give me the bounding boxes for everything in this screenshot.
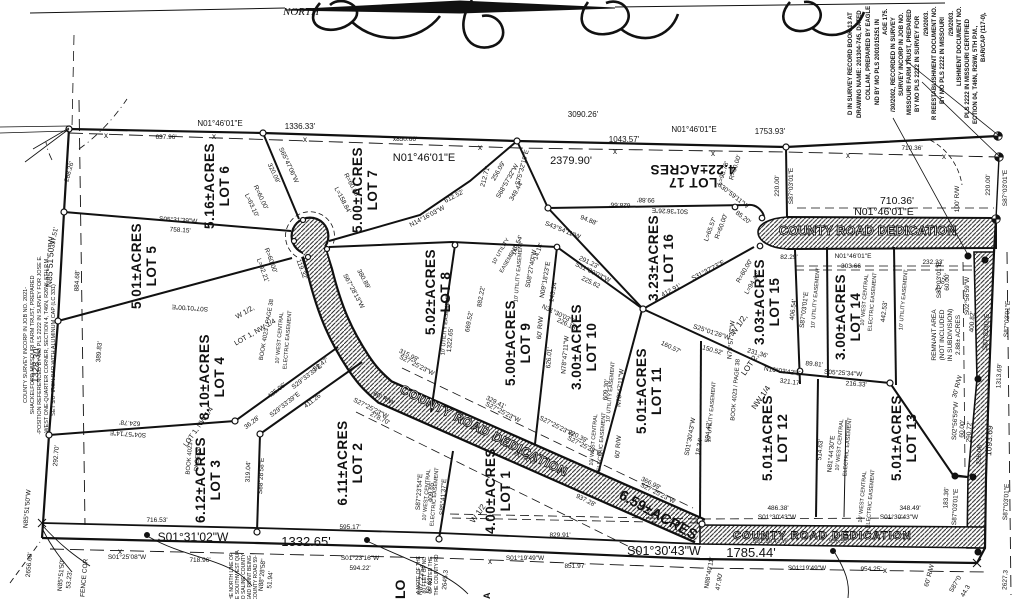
- svg-text:954.25': 954.25': [860, 566, 881, 573]
- svg-text:BAR/CAP (117-0),: BAR/CAP (117-0),: [981, 12, 987, 62]
- svg-text:LOT 12: LOT 12: [775, 414, 790, 463]
- svg-text:99.88': 99.88': [637, 196, 655, 204]
- svg-text:COUNTY ROAD 59-: COUNTY ROAD 59-: [253, 555, 259, 599]
- svg-text:486.38': 486.38': [767, 505, 788, 512]
- svg-text:/29/2003.: /29/2003.: [949, 11, 955, 36]
- svg-text:LOT 9: LOT 9: [518, 323, 533, 364]
- svg-text:718.96': 718.96': [189, 557, 210, 564]
- svg-text:5.01±ACRES: 5.01±ACRES: [129, 223, 144, 309]
- svg-text:3.23±ACRES: 3.23±ACRES: [646, 215, 661, 301]
- svg-text:-POSITION REFERENCED BY MO PLS: -POSITION REFERENCED BY MO PLS 2222 IN S…: [37, 255, 43, 435]
- svg-text:1313.69': 1313.69': [995, 363, 1003, 388]
- svg-text:S01°19'49"W: S01°19'49"W: [788, 564, 827, 572]
- svg-text:1336.33': 1336.33': [285, 122, 316, 131]
- svg-text:S01°30'43"W: S01°30'43"W: [752, 539, 788, 545]
- svg-text:S01°30'43"W: S01°30'43"W: [758, 513, 797, 521]
- svg-text:S01°36'26"E: S01°36'26"E: [651, 206, 688, 215]
- svg-text:LOT 1: LOT 1: [498, 471, 513, 512]
- svg-text:S87°03'01"E: S87°03'01"E: [787, 167, 795, 204]
- svg-text:x: x: [303, 135, 307, 144]
- svg-text:595.17': 595.17': [339, 524, 360, 531]
- svg-text:x: x: [212, 132, 216, 141]
- svg-text:624.78': 624.78': [119, 418, 141, 426]
- svg-text:LOT 6: LOT 6: [217, 166, 232, 207]
- svg-text:PLS 2222 IN MISSOURI CERTIFIED: PLS 2222 IN MISSOURI CERTIFIED: [965, 18, 971, 118]
- svg-text:851.97': 851.97': [564, 563, 585, 570]
- svg-text:x: x: [883, 566, 887, 575]
- svg-text:319.04': 319.04': [244, 461, 252, 482]
- svg-text:LISHMENT DOCUMENT NO.: LISHMENT DOCUMENT NO.: [957, 6, 963, 86]
- svg-text:N01°46'01"E: N01°46'01"E: [835, 252, 873, 260]
- svg-text:NORTH: NORTH: [282, 6, 320, 18]
- svg-text:2627.3: 2627.3: [1001, 569, 1009, 590]
- svg-text:LOT 15: LOT 15: [767, 278, 782, 327]
- svg-text:1043.57': 1043.57': [609, 135, 640, 144]
- svg-text:LOT 7: LOT 7: [365, 170, 380, 211]
- svg-text:594.22': 594.22': [349, 565, 370, 572]
- svg-text:THE COUNTY RD: THE COUNTY RD: [434, 554, 440, 595]
- svg-text:x: x: [711, 149, 715, 158]
- svg-text:1332.65': 1332.65': [281, 534, 330, 549]
- svg-text:A: A: [482, 592, 492, 599]
- svg-text:216.33': 216.33': [845, 380, 867, 388]
- svg-text:710.36': 710.36': [901, 145, 922, 152]
- svg-text:758.15': 758.15': [169, 226, 191, 234]
- svg-text:N01°46'01"E: N01°46'01"E: [393, 152, 455, 164]
- svg-text:628.66': 628.66': [609, 201, 630, 209]
- svg-text:S01°23'16"W: S01°23'16"W: [341, 554, 380, 562]
- svg-text:S02°56'59"W: S02°56'59"W: [963, 276, 971, 315]
- svg-text:LOT 10: LOT 10: [584, 323, 599, 372]
- svg-text:303.66: 303.66: [841, 263, 861, 270]
- svg-text:5.01±ACRES: 5.01±ACRES: [760, 395, 775, 481]
- svg-text:884.68': 884.68': [73, 270, 81, 291]
- svg-text:DRAWING NAME: 201304-745, DATE: DRAWING NAME: 201304-745, DATED: [857, 10, 863, 118]
- svg-text:COUNTY ROAD DEDICATION: COUNTY ROAD DEDICATION: [779, 224, 957, 238]
- svg-text:REMNANT AREA: REMNANT AREA: [931, 309, 938, 361]
- svg-text:1753.93': 1753.93': [755, 127, 786, 136]
- svg-text:5.00±ACRES: 5.00±ACRES: [503, 300, 518, 386]
- svg-text:LOT 13: LOT 13: [904, 414, 919, 463]
- svg-text:S01°31'02"W: S01°31'02"W: [158, 530, 229, 544]
- svg-text:232.33': 232.33': [922, 259, 943, 266]
- svg-text:x: x: [478, 143, 482, 152]
- svg-text:x: x: [613, 147, 617, 156]
- svg-text:COLLAM, PREPARED BY EAGLE: COLLAM, PREPARED BY EAGLE: [866, 6, 872, 100]
- svg-text:LOT 3: LOT 3: [208, 460, 223, 501]
- svg-text:COUNTY SURVEY INCORP IN JOB NO: COUNTY SURVEY INCORP IN JOB NO. 2021-: [23, 287, 29, 403]
- svg-text:x: x: [846, 151, 850, 160]
- svg-text:LO: LO: [392, 579, 408, 599]
- svg-text:82.29': 82.29': [780, 254, 798, 261]
- svg-text:4.00±ACRES: 4.00±ACRES: [483, 448, 498, 534]
- svg-text:5.16±ACRES: 5.16±ACRES: [202, 143, 217, 229]
- svg-text:3090.26': 3090.26': [568, 110, 599, 119]
- svg-text:LOT 11: LOT 11: [649, 367, 664, 415]
- svg-text:SURVEY INCORP IN JOB NO.: SURVEY INCORP IN JOB NO.: [899, 12, 905, 96]
- svg-text:WEST ONE-QUARTER CORNER, SECTI: WEST ONE-QUARTER CORNER, SECTION 4, T46N…: [44, 257, 50, 433]
- svg-text:ND BY MO PLS 2001015251 IN: ND BY MO PLS 2001015251 IN: [875, 19, 881, 105]
- svg-text:3.00±ACRES: 3.00±ACRES: [833, 274, 848, 360]
- svg-text:SHACKELFORD MISSOURI FARM TRUS: SHACKELFORD MISSOURI FARM TRUST, PREPARE…: [30, 276, 36, 415]
- svg-text:956.53: 956.53: [829, 539, 848, 545]
- svg-text:LOT 2: LOT 2: [350, 443, 365, 484]
- svg-text:x: x: [118, 547, 122, 556]
- svg-text:290.72': 290.72': [965, 421, 973, 442]
- svg-text:AGE 175.: AGE 175.: [883, 8, 889, 35]
- svg-text:348.49': 348.49': [899, 505, 920, 512]
- svg-text:5.02±ACRES: 5.02±ACRES: [423, 249, 438, 335]
- svg-text:716.53': 716.53': [146, 517, 167, 524]
- svg-text:S01°30'43"W: S01°30'43"W: [880, 513, 919, 521]
- svg-text:ECTION 04, T46N, R26W, 5TH P.M: ECTION 04, T46N, R26W, 5TH P.M.,: [973, 25, 979, 124]
- svg-text:/29/2003.: /29/2003.: [924, 11, 930, 36]
- svg-text:(NOT INCLUDED: (NOT INCLUDED: [939, 309, 946, 360]
- svg-text:1093.69': 1093.69': [983, 423, 995, 456]
- svg-text:S87°03'01"E: S87°03'01"E: [1001, 169, 1009, 206]
- svg-text:N01°46'01"E: N01°46'01"E: [671, 125, 716, 134]
- svg-text:D IN SURVEY RECORD BOOK 13 AT: D IN SURVEY RECORD BOOK 13 AT: [848, 12, 854, 115]
- svg-text:LOT 4: LOT 4: [212, 357, 227, 398]
- svg-text:5.01±ACRES: 5.01±ACRES: [634, 348, 649, 434]
- svg-text:x850.66': x850.66': [393, 136, 417, 143]
- svg-text:IN SUBDIVISION): IN SUBDIVISION): [947, 309, 954, 361]
- svg-text:228.08: 228.08: [975, 444, 983, 465]
- svg-text:LOT 5: LOT 5: [144, 246, 159, 287]
- svg-text:S01°25'08"W: S01°25'08"W: [108, 553, 147, 561]
- svg-text:637.96': 637.96': [155, 134, 176, 141]
- svg-text:829.91': 829.91': [549, 532, 570, 539]
- svg-text:x: x: [488, 557, 492, 566]
- svg-text:BY MO PLS 2222 IN SURVEY FOR: BY MO PLS 2222 IN SURVEY FOR: [915, 15, 921, 112]
- svg-text:220.00': 220.00': [774, 175, 781, 196]
- svg-text:6.11±ACRES: 6.11±ACRES: [335, 420, 350, 505]
- svg-text:R REESTABLISHMENT DOCUMENT NO.: R REESTABLISHMENT DOCUMENT NO.: [932, 6, 938, 120]
- svg-text:220.00': 220.00': [985, 174, 992, 195]
- svg-text:N01°46'01"E: N01°46'01"E: [197, 119, 242, 128]
- svg-text:S01°19'49"W: S01°19'49"W: [506, 554, 545, 562]
- svg-text:1785.44': 1785.44': [726, 545, 775, 560]
- svg-text:2379.90': 2379.90': [550, 155, 592, 167]
- svg-text:183.36': 183.36': [942, 487, 950, 508]
- svg-text:LOT 16: LOT 16: [661, 234, 676, 283]
- svg-text:400.82': 400.82': [968, 311, 976, 332]
- svg-text:x: x: [104, 131, 108, 140]
- svg-text:SET 5/8" IRON BAR WITH ALUMINU: SET 5/8" IRON BAR WITH ALUMINUM CAP (LC …: [51, 284, 57, 416]
- svg-text:5.01±ACRES: 5.01±ACRES: [889, 395, 904, 481]
- svg-text:2.88± ACRES: 2.88± ACRES: [955, 314, 962, 355]
- svg-text:/30/2002, RECORDED IN SURVEY: /30/2002, RECORDED IN SURVEY: [891, 17, 897, 112]
- svg-text:x: x: [942, 152, 946, 161]
